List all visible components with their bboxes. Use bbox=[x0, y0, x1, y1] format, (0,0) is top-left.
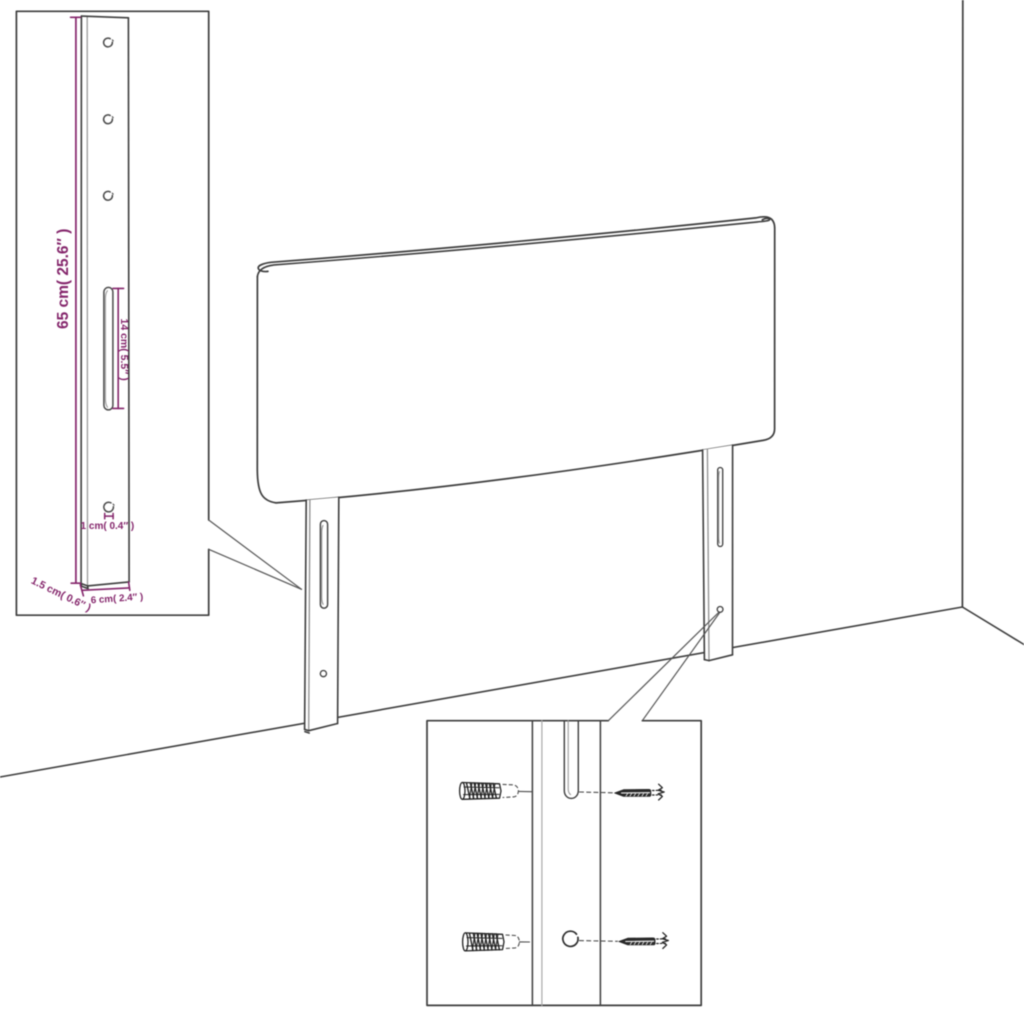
svg-text:1 cm( 0.4″ ): 1 cm( 0.4″ ) bbox=[81, 521, 135, 532]
svg-text:65 cm( 25.6″ ): 65 cm( 25.6″ ) bbox=[55, 229, 72, 329]
svg-text:6 cm( 2.4″ ): 6 cm( 2.4″ ) bbox=[90, 592, 143, 607]
svg-text:14 cm( 5.5″ ): 14 cm( 5.5″ ) bbox=[118, 318, 130, 380]
